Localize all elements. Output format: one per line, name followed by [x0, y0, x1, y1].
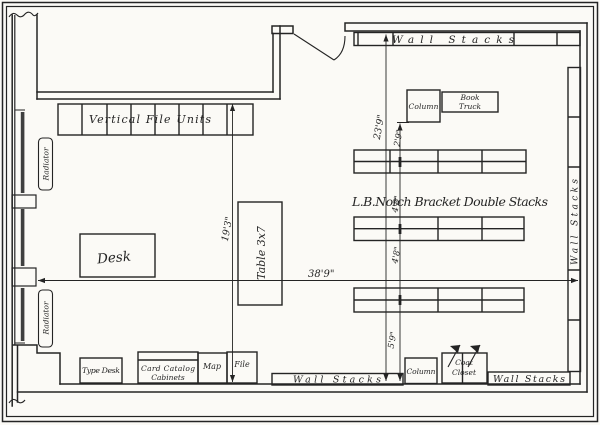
- column-bottom-label: Column: [407, 367, 436, 376]
- card-catalog-label-1: Card Catalog: [141, 364, 195, 373]
- wall-stacks-top-label: Wall Stacks: [392, 34, 515, 46]
- book-truck-label-1: Book: [459, 93, 480, 102]
- dim-38-9: 38'9": [308, 269, 334, 280]
- radiator-bottom: Radiator: [39, 290, 53, 347]
- dimension-room-width: 38'9": [38, 269, 578, 283]
- double-stacks-row-3: [354, 288, 524, 312]
- walls: [9, 12, 587, 406]
- wall-stacks-right: Wall Stacks: [568, 68, 581, 372]
- column-bottom: Column: [405, 358, 437, 384]
- wall-stacks-bottom-right-label: Wall Stacks: [493, 374, 565, 385]
- vertical-file-units: Vertical File Units: [58, 104, 253, 135]
- dimension-left-depth: 19'3": [220, 104, 235, 382]
- coat-closet: Coat Closet: [442, 345, 487, 383]
- double-stacks-note: L.B.Notch Bracket Double Stacks: [351, 194, 548, 209]
- vertical-file-units-label: Vertical File Units: [89, 113, 211, 126]
- radiator-strip: [21, 112, 25, 193]
- card-catalog-label-2: Cabinets: [151, 373, 185, 382]
- map-file: Map File: [198, 352, 257, 383]
- dim-2-9: 2'9": [392, 129, 405, 149]
- book-truck-label-2: Truck: [459, 102, 482, 111]
- double-stacks-row-2: [354, 217, 524, 241]
- wall-pier: [12, 268, 36, 286]
- coat-closet-label-1: Coat: [455, 358, 474, 367]
- card-catalog-cabinets: Card Catalog Cabinets: [138, 352, 198, 383]
- column-top: Column: [407, 90, 440, 122]
- column-top-label: Column: [409, 102, 439, 111]
- radiator-strip: [21, 288, 25, 341]
- wall-pier: [12, 195, 36, 208]
- wall-stacks-bottom-right: Wall Stacks: [488, 372, 570, 385]
- book-truck: Book Truck: [442, 92, 498, 112]
- wall-stacks-right-label: Wall Stacks: [571, 179, 581, 265]
- dim-23-9: 23'9": [372, 114, 387, 142]
- desk-label: Desk: [95, 249, 131, 268]
- radiator-top: Radiator: [39, 138, 53, 190]
- double-stacks-row-1: [354, 150, 526, 173]
- wall-stacks-bottom-left-label: Wall Stacks: [293, 375, 381, 386]
- radiator-strip: [21, 209, 25, 266]
- wall-stacks-top: Wall Stacks: [354, 33, 580, 47]
- table-label: Table 3x7: [255, 226, 268, 280]
- map-label: Map: [202, 362, 221, 371]
- desk: Desk: [80, 234, 155, 277]
- radiator-top-label: Radiator: [42, 147, 51, 181]
- radiator-bottom-label: Radiator: [42, 301, 51, 335]
- table-3x7: Table 3x7: [238, 202, 282, 305]
- type-desk-label: Type Desk: [82, 366, 120, 375]
- file-label: File: [233, 360, 250, 369]
- dim-4-8-a: 4'8": [390, 195, 403, 215]
- type-desk: Type Desk: [80, 358, 122, 383]
- floor-plan-svg: Radiator Radiator Vertical File Units Wa…: [0, 0, 600, 425]
- dim-5-9: 5'9": [387, 331, 400, 350]
- door-swing-arc: [334, 36, 345, 60]
- coat-closet-label-2: Closet: [452, 368, 477, 377]
- floor-plan-page: Radiator Radiator Vertical File Units Wa…: [0, 0, 600, 425]
- dim-4-8-b: 4'8": [390, 246, 403, 266]
- door-leaf: [294, 34, 334, 60]
